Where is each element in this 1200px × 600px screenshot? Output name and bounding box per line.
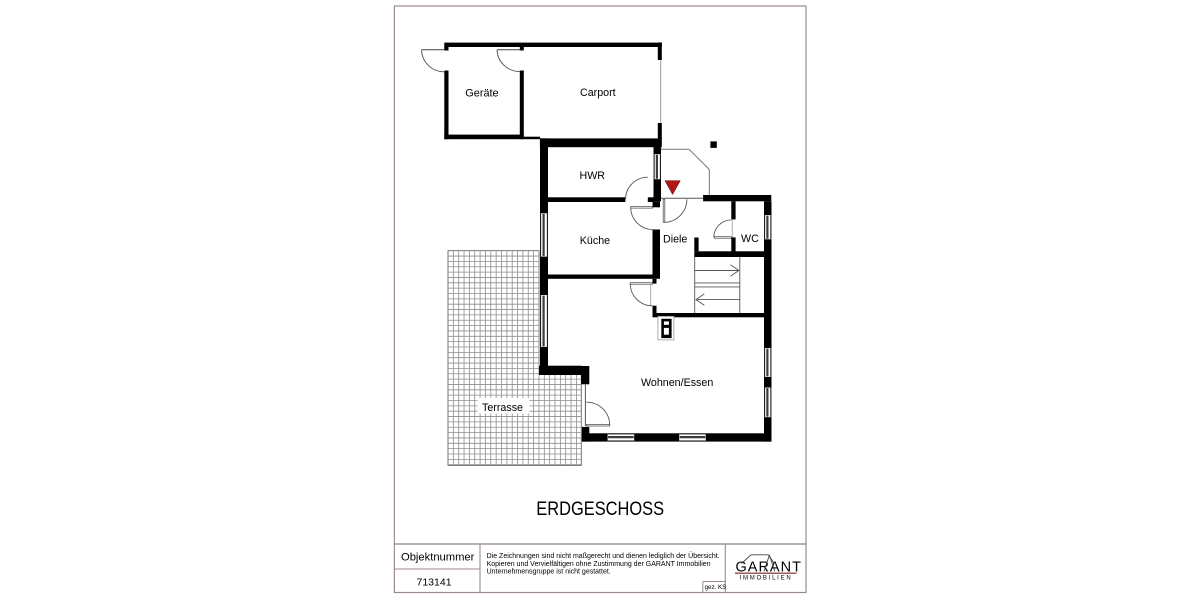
svg-text:Wohnen/Essen: Wohnen/Essen [641,377,713,389]
svg-text:Carport: Carport [580,87,616,99]
svg-text:ERDGESCHOSS: ERDGESCHOSS [536,497,664,519]
svg-text:Diele: Diele [663,234,687,246]
svg-text:IMMOBILIEN: IMMOBILIEN [740,576,793,582]
svg-text:Die Zeichnungen sind nicht maß: Die Zeichnungen sind nicht maßgerecht un… [487,552,720,560]
svg-text:HWR: HWR [580,170,606,182]
svg-text:Terrasse: Terrasse [482,402,523,414]
svg-text:Kopieren und Vervielfältigen o: Kopieren und Vervielfältigen ohne Zustim… [487,561,711,568]
svg-text:Küche: Küche [580,235,610,247]
svg-text:Geräte: Geräte [465,88,498,100]
svg-text:WC: WC [741,233,759,245]
svg-text:713141: 713141 [417,577,452,589]
svg-text:Objektnummer: Objektnummer [401,551,475,563]
svg-text:gez. KS: gez. KS [705,584,727,591]
svg-text:Unternehmensgruppe ist nicht g: Unternehmensgruppe ist nicht gestattet. [487,569,611,576]
